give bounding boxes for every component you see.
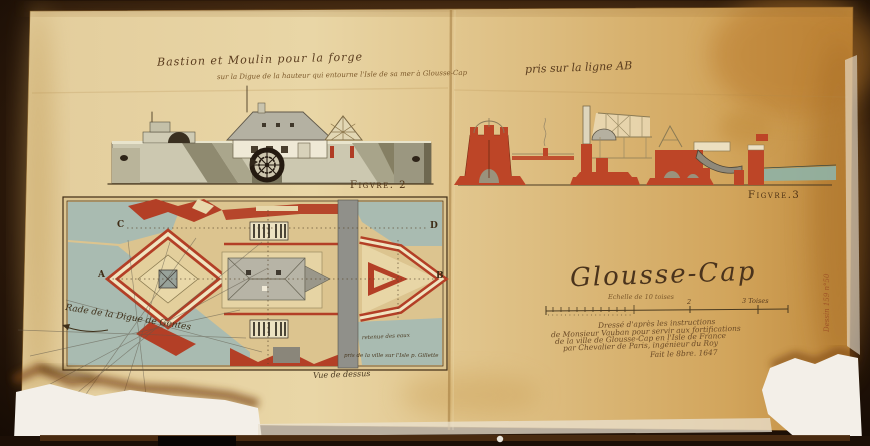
plan-note-prise: pris de la ville sur l'Isle p. Gillette <box>344 354 439 360</box>
mount-pin <box>497 436 503 442</box>
plan-letter-a: A <box>98 271 105 280</box>
map-title: Glousse-Cap <box>570 259 757 291</box>
plan-forge-building <box>222 252 330 308</box>
plan-dike-band <box>338 200 358 368</box>
figure3-caption: Figvre.3 <box>748 191 800 201</box>
scale-caption: Echelle de 10 toises <box>608 294 674 301</box>
archive-margin-note: Dessin 159 n°50 <box>824 274 831 332</box>
figure2-caption: Figvre. 2 <box>350 181 407 191</box>
mat-bottom-bar <box>0 435 870 446</box>
scale-end-value: 3 Toises <box>742 298 769 305</box>
water-wheel <box>250 150 282 180</box>
plan-letter-d: D <box>430 222 438 231</box>
section-line-note: pris sur la ligne AB <box>525 60 633 75</box>
archival-drawing-photo: Bastion et Moulin pour la forge sur la D… <box>0 0 870 446</box>
plan-letter-b: B <box>436 272 444 281</box>
plan-letter-c: C <box>117 221 124 230</box>
scale-mid-value: 2 <box>687 299 691 306</box>
